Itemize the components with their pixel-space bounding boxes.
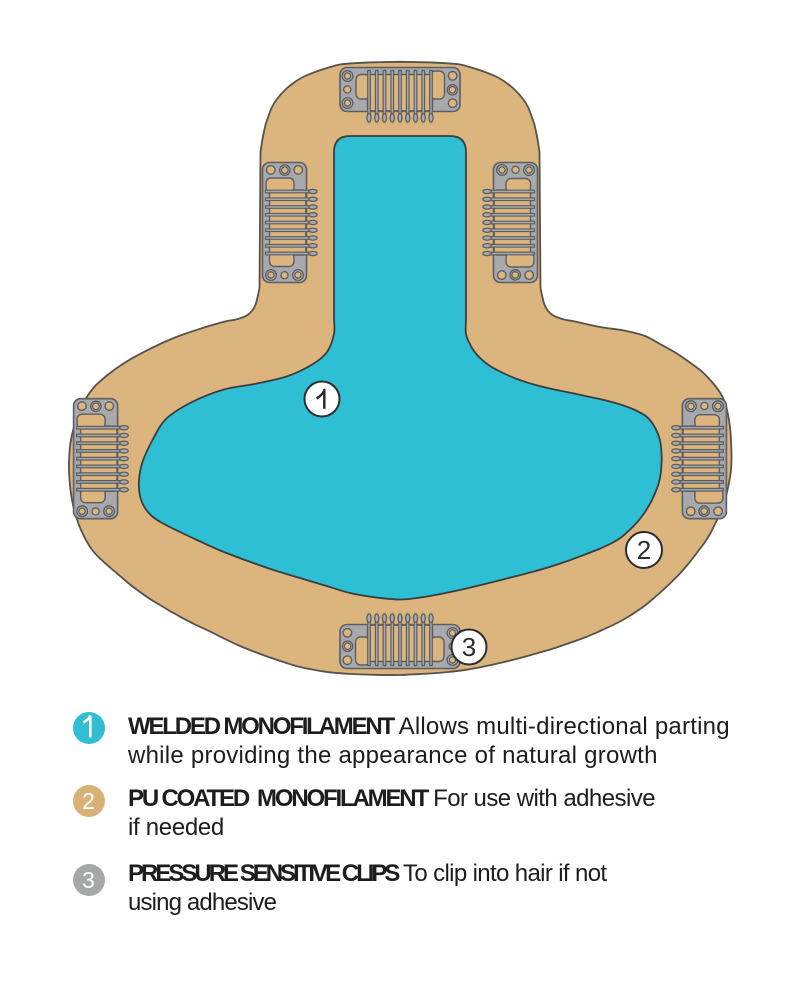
svg-text:2: 2 <box>637 535 651 565</box>
svg-text:3: 3 <box>462 632 476 662</box>
